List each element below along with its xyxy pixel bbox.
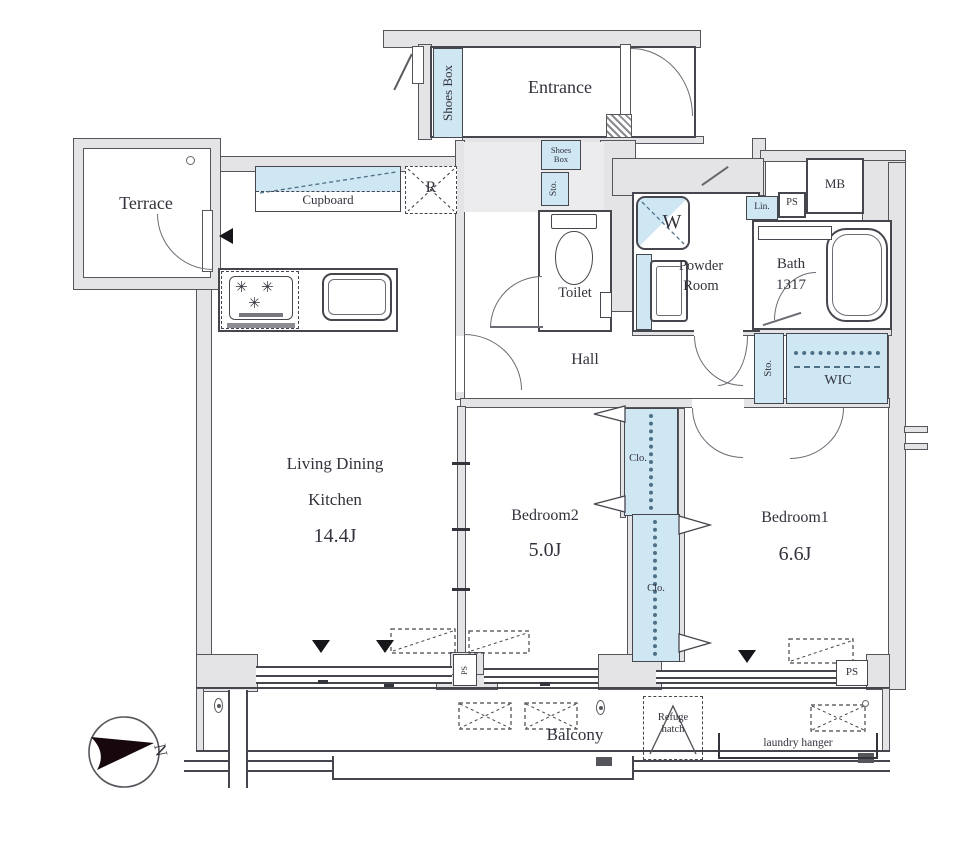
balcony-pipe bbox=[228, 690, 248, 788]
neighbor-door-swing bbox=[393, 54, 412, 91]
fridge-label: R bbox=[405, 178, 457, 198]
bedroom2-area: 5.0J bbox=[475, 538, 615, 563]
window-sash bbox=[318, 680, 328, 684]
balcony-top-line bbox=[196, 687, 890, 689]
floor-plan: Shoes Box Shoes Box Sto. Lin. Sto. ✳ ✳ ✳… bbox=[0, 0, 953, 852]
ldk-line2: Kitchen bbox=[235, 482, 435, 518]
bedroom1-door-arc bbox=[692, 408, 743, 458]
rail-sash bbox=[596, 757, 612, 766]
wall-ldk-bedroom2 bbox=[457, 406, 466, 662]
washer-label: W bbox=[652, 210, 692, 235]
stove-bar bbox=[227, 323, 295, 328]
storage-2-label: Sto. bbox=[762, 360, 775, 377]
bedroom1-label: Bedroom1 bbox=[720, 508, 870, 528]
hall-label: Hall bbox=[545, 350, 625, 370]
bath-line2: 1317 bbox=[752, 275, 830, 296]
bath-shelf bbox=[758, 226, 832, 240]
burner-icon: ✳ bbox=[235, 278, 248, 297]
pipe-space-pillar-label: PS bbox=[460, 666, 470, 675]
window-marker bbox=[312, 640, 330, 653]
linen-label: Lin. bbox=[754, 202, 770, 214]
compass-needle bbox=[91, 737, 154, 770]
ac-unit-box bbox=[468, 630, 530, 654]
powder-room-label: Powder Room bbox=[648, 256, 754, 296]
cupboard-label: Cupboard bbox=[262, 192, 394, 208]
ldk-door-arc bbox=[464, 334, 522, 390]
linen-box: Lin. bbox=[746, 196, 778, 220]
faucet-icon bbox=[596, 700, 605, 715]
gap-bedroom1-door bbox=[692, 399, 744, 408]
shoes-box-1: Shoes Box bbox=[433, 48, 463, 138]
bathtub-inner bbox=[832, 234, 882, 316]
powder-door-arc bbox=[718, 336, 748, 386]
refuge-hatch-line1: Refuge bbox=[643, 712, 703, 724]
drain-panel bbox=[458, 702, 512, 730]
wic-box bbox=[786, 333, 888, 404]
gap-kitchen-door bbox=[456, 336, 464, 392]
toilet-bowl bbox=[555, 231, 593, 285]
bedroom2-label: Bedroom2 bbox=[475, 506, 615, 526]
bedroom1-area: 6.6J bbox=[720, 542, 870, 567]
neighbor-door-leaf bbox=[412, 46, 424, 84]
wall-tick bbox=[452, 588, 470, 591]
bath-line1: Bath bbox=[752, 254, 830, 275]
toilet-label: Toilet bbox=[538, 284, 612, 302]
wic-label: WIC bbox=[806, 372, 870, 390]
folding-door-triangle bbox=[678, 632, 712, 654]
bath-label: Bath 1317 bbox=[752, 254, 830, 296]
balcony-label: Balcony bbox=[515, 724, 635, 745]
refuge-hatch-label: Refuge hatch bbox=[643, 712, 703, 736]
toilet-tank bbox=[551, 214, 597, 229]
ldk-line1: Living Dining bbox=[235, 446, 435, 482]
pipe-space-2: PS bbox=[836, 660, 868, 686]
burner-icon: ✳ bbox=[261, 278, 274, 297]
toilet-door-arc bbox=[490, 276, 542, 328]
burner-icon: ✳ bbox=[248, 294, 261, 313]
wall-bottom-d bbox=[866, 654, 890, 690]
wic-rail-2 bbox=[794, 366, 880, 368]
wall-tab-1 bbox=[904, 426, 928, 433]
shoes-box-2: Shoes Box bbox=[541, 140, 581, 170]
drain-circle bbox=[186, 156, 195, 165]
terrace-label: Terrace bbox=[90, 192, 202, 215]
wall-band-entrance bbox=[612, 158, 764, 196]
storage-1-label: Sto. bbox=[549, 181, 561, 196]
storage-1: Sto. bbox=[541, 172, 569, 206]
laundry-bar-end bbox=[876, 733, 878, 759]
drain-panel bbox=[810, 704, 866, 732]
window-marker bbox=[376, 640, 394, 653]
balcony-right-wall bbox=[882, 688, 890, 752]
ac-unit-box bbox=[390, 628, 456, 654]
window-marker bbox=[738, 650, 756, 663]
wall-tab-2 bbox=[904, 443, 928, 450]
wall-tick bbox=[452, 528, 470, 531]
window-bedroom1 bbox=[656, 670, 838, 684]
drain-circle bbox=[862, 700, 869, 707]
balcony-rail-mid bbox=[332, 756, 634, 780]
ldk-area: 14.4J bbox=[235, 518, 435, 554]
wic-rail-1 bbox=[794, 351, 880, 355]
compass-north-label: N bbox=[150, 742, 171, 758]
kitchen-sink-inner bbox=[328, 279, 386, 315]
ldk-label: Living Dining Kitchen 14.4J bbox=[235, 446, 435, 554]
wic-door-arc bbox=[790, 408, 844, 459]
entrance-label: Entrance bbox=[480, 76, 640, 99]
compass: N bbox=[78, 710, 188, 800]
pipe-space-pillar: PS bbox=[453, 654, 477, 686]
wall-tick bbox=[452, 462, 470, 465]
faucet-icon bbox=[214, 698, 223, 713]
pipe-space-2-label: PS bbox=[846, 666, 858, 680]
storage-2: Sto. bbox=[754, 333, 784, 404]
gap-hall-door bbox=[694, 327, 743, 336]
closet-upper-label: Clo. bbox=[608, 452, 668, 465]
entry-floor bbox=[464, 142, 604, 212]
folding-door-triangle bbox=[592, 404, 626, 424]
pipe-space-1-label: PS bbox=[778, 196, 806, 209]
folding-door-triangle bbox=[678, 514, 712, 536]
balcony-left-wall bbox=[196, 688, 204, 752]
refuge-hatch-line2: hatch bbox=[643, 724, 703, 736]
stove-grill bbox=[239, 313, 283, 317]
meter-box-label: MB bbox=[806, 176, 864, 192]
powder-room-line2: Room bbox=[648, 276, 754, 296]
window-ldk bbox=[256, 666, 452, 684]
laundry-bar bbox=[718, 757, 878, 759]
laundry-bar-end bbox=[718, 733, 720, 759]
entrance-pivot-hatch bbox=[606, 114, 632, 138]
door-marker bbox=[219, 228, 233, 244]
powder-room-line1: Powder bbox=[648, 256, 754, 276]
closet-lower-label: Clo. bbox=[632, 582, 680, 595]
shoes-box-2-label: Shoes Box bbox=[546, 146, 576, 164]
shoes-box-1-label: Shoes Box bbox=[440, 65, 456, 121]
laundry-hanger-label: laundry hanger bbox=[738, 736, 858, 750]
window-sash bbox=[540, 682, 550, 686]
